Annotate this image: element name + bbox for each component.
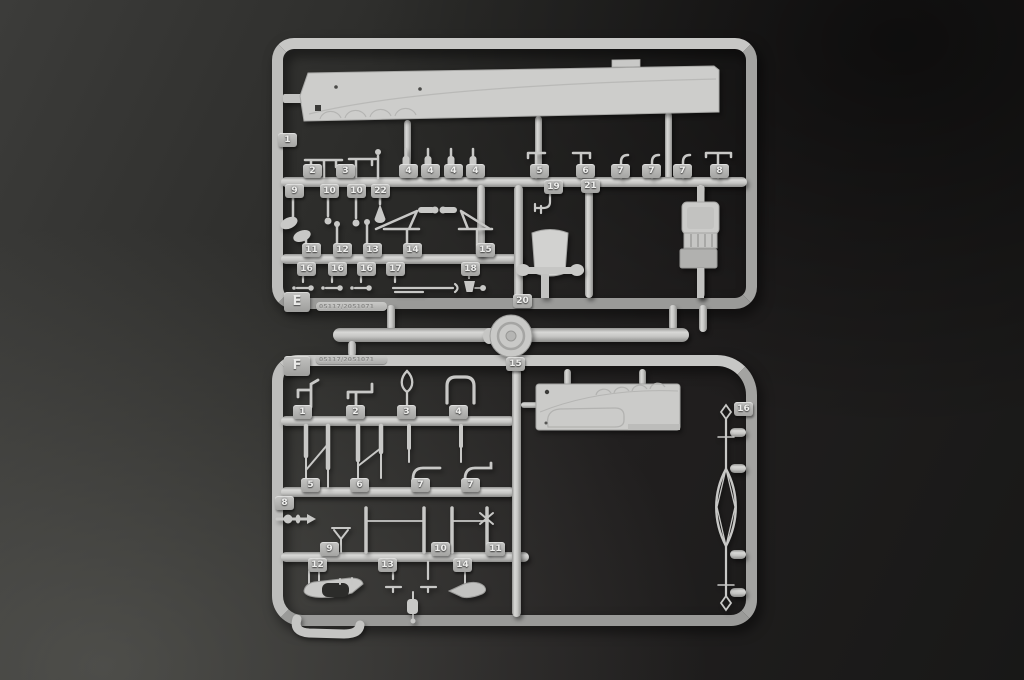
folding-chair-part	[680, 186, 719, 298]
sprue-e-label-tab: E	[284, 292, 310, 312]
part-number-tab-e-8: 8	[710, 164, 729, 178]
molded-parts	[0, 0, 1024, 680]
spindle-rod-part	[277, 514, 316, 524]
pin-rod-assemblies	[332, 508, 493, 552]
part-number-tab-f-6: 6	[350, 478, 369, 492]
sprue-f-label-tab: F	[284, 356, 310, 376]
part-number-tab-e-4: 4	[421, 164, 440, 178]
part-number-tab-f-12: 12	[308, 558, 327, 572]
part-number-tab-f-10: 10	[431, 542, 450, 556]
part-number-tab-e-9: 9	[285, 184, 304, 198]
part-number-tab-e-17: 17	[386, 262, 405, 276]
pulley-wheel-part	[483, 315, 532, 357]
part-number-tab-e-4: 4	[399, 164, 418, 178]
part-number-tab-e-10: 10	[347, 184, 366, 198]
part-number-tab-f-3: 3	[397, 405, 416, 419]
part-number-tab-f-11: 11	[486, 542, 505, 556]
part-number-tab-e-11: 11	[302, 243, 321, 257]
part-number-tab-f-14: 14	[453, 558, 472, 572]
part-number-tab-e-7: 7	[611, 164, 630, 178]
part-number-tab-e-16: 16	[297, 262, 316, 276]
part-number-tab-f-7: 7	[461, 478, 480, 492]
curved-tube-part	[296, 619, 360, 634]
part-number-tab-e-6: 6	[576, 164, 595, 178]
mold-code-f: 05117/2051071	[316, 355, 387, 364]
part-number-tab-e-21: 21	[581, 179, 600, 193]
part-number-tab-e-13: 13	[363, 243, 382, 257]
part-number-tab-e-4: 4	[466, 164, 485, 178]
sprue-photo: E F 05117/2051071 05117/2051071 12344445…	[0, 0, 1024, 680]
part-number-tab-f-16: 16	[734, 402, 753, 416]
small-mast-pin-parts	[305, 149, 731, 178]
part-number-tab-e-16: 16	[328, 262, 347, 276]
part-number-tab-f-9: 9	[320, 542, 339, 556]
lattice-mast-part	[716, 405, 736, 610]
part-number-tab-f-5: 5	[301, 478, 320, 492]
part-number-tab-f-15: 15	[506, 357, 525, 371]
part-number-tab-e-1: 1	[278, 133, 297, 147]
part-number-tab-f-2: 2	[346, 405, 365, 419]
mold-code-e: 05117/2051071	[316, 302, 387, 311]
pipe-fitting-parts	[298, 371, 474, 407]
part-number-tab-e-16: 16	[357, 262, 376, 276]
part-number-tab-f-8: 8	[275, 496, 294, 510]
part-number-tab-e-2: 2	[303, 164, 322, 178]
seat-part	[516, 230, 584, 299]
flight-deck-part	[283, 60, 719, 122]
part-number-tab-f-13: 13	[378, 558, 397, 572]
part-number-tab-e-18: 18	[461, 262, 480, 276]
deck-part	[536, 383, 680, 430]
part-number-tab-e-14: 14	[403, 243, 422, 257]
part-number-tab-f-4: 4	[449, 405, 468, 419]
part-number-tab-e-20: 20	[513, 294, 532, 308]
part-number-tab-e-22: 22	[371, 184, 390, 198]
part-number-tab-e-5: 5	[530, 164, 549, 178]
boat-davit-parts	[376, 207, 492, 254]
part-number-tab-e-10: 10	[320, 184, 339, 198]
part-number-tab-e-3: 3	[336, 164, 355, 178]
part-number-tab-e-7: 7	[642, 164, 661, 178]
part-number-tab-e-4: 4	[444, 164, 463, 178]
part-number-tab-f-1: 1	[293, 405, 312, 419]
part-number-tab-e-15: 15	[476, 243, 495, 257]
part-number-tab-e-7: 7	[673, 164, 692, 178]
part-number-tab-e-12: 12	[333, 243, 352, 257]
part-number-tab-f-7: 7	[411, 478, 430, 492]
part-number-tab-e-19: 19	[544, 180, 563, 194]
